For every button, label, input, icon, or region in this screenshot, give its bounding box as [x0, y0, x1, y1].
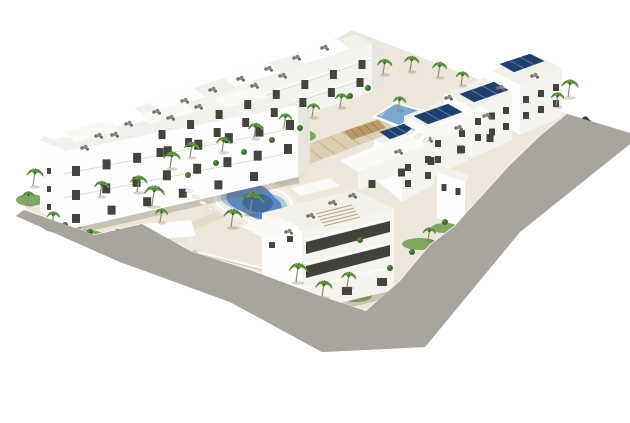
render-scene: [0, 0, 630, 423]
architectural-render-image: [0, 0, 630, 423]
